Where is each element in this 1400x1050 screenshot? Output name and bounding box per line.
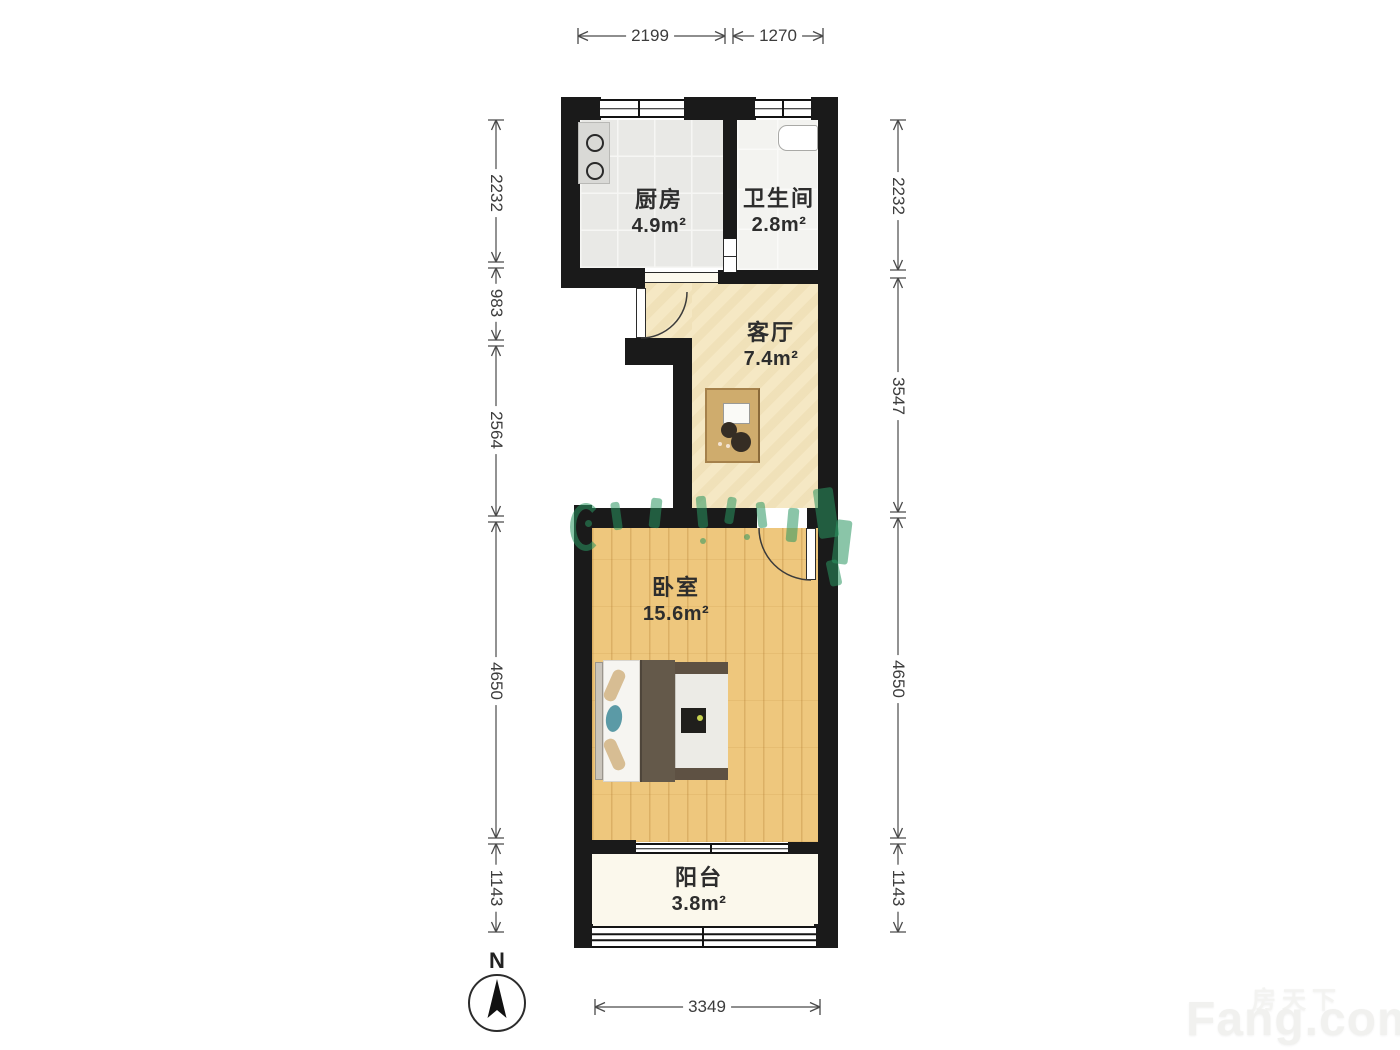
bedroom-name: 卧室 — [643, 574, 709, 602]
dim-left-0: 2232 — [486, 169, 506, 217]
kitchen-window — [600, 99, 684, 118]
kitchen-label: 厨房 4.9m² — [632, 186, 687, 239]
living-room-entry-sill — [645, 272, 718, 283]
table-plate — [723, 403, 750, 424]
balcony-window — [592, 926, 816, 948]
wardrobe — [675, 662, 728, 780]
balcony-label: 阳台 3.8m² — [672, 864, 727, 917]
bed — [595, 660, 675, 782]
dim-left-4: 1143 — [486, 865, 506, 912]
living-room-area: 7.4m² — [744, 346, 799, 371]
wall-bedroom-balcony-right — [788, 842, 820, 854]
balcony-name: 阳台 — [672, 864, 727, 892]
dim-top-0: 2199 — [626, 26, 674, 46]
bedroom-label: 卧室 15.6m² — [643, 574, 709, 627]
wall-living-left — [673, 338, 692, 510]
green-watermark-mark — [570, 503, 602, 551]
wall-bedroom-balcony-left — [574, 840, 636, 854]
tv-dot — [697, 715, 703, 721]
wall-balcony-corner-right — [814, 924, 838, 948]
bathroom-window — [755, 99, 811, 118]
bed-headboard — [595, 662, 603, 780]
dim-right-1: 3547 — [888, 372, 908, 420]
bedroom-balcony-slider — [636, 843, 788, 854]
living-room-name: 客厅 — [744, 319, 799, 347]
bathroom-door — [723, 239, 737, 272]
dim-left-3: 4650 — [486, 657, 506, 705]
dim-right-3: 1143 — [888, 865, 908, 912]
green-watermark-mark — [744, 534, 750, 540]
floorplan-canvas: 房天下 Fang.com — [0, 0, 1400, 1050]
bathroom-label: 卫生间 2.8m² — [743, 185, 815, 238]
bathroom-name: 卫生间 — [743, 185, 815, 213]
living-room-door-leaf — [636, 288, 646, 338]
wall-balcony-corner-left — [574, 924, 593, 948]
balcony-area: 3.8m² — [672, 891, 727, 916]
dim-right-0: 2232 — [888, 172, 908, 220]
kitchen-name: 厨房 — [632, 186, 687, 214]
compass-north-label: N — [489, 948, 505, 974]
tv — [681, 708, 706, 733]
window-mullion — [638, 101, 640, 116]
window-mullion — [782, 101, 784, 116]
window-mullion — [702, 928, 704, 946]
living-room-table — [705, 388, 760, 463]
bedroom-area: 15.6m² — [643, 601, 709, 626]
wall-kitchen-bottom — [561, 268, 645, 288]
stove — [578, 122, 610, 184]
dim-right-2: 4650 — [888, 655, 908, 703]
wall-step-block — [625, 338, 677, 365]
dim-bottom-0: 3349 — [683, 997, 731, 1017]
window-mullion — [710, 845, 712, 852]
kitchen-area: 4.9m² — [632, 213, 687, 238]
wall-left-lower — [574, 505, 592, 948]
table-stool — [731, 432, 751, 452]
table-dot — [718, 442, 722, 446]
stove-burner — [586, 134, 604, 152]
bed-duvet — [640, 660, 675, 782]
dim-top-1: 1270 — [754, 26, 802, 46]
wall-top-middle — [684, 97, 756, 120]
green-watermark-mark — [585, 520, 592, 527]
wall-kitchen-bath-divider — [723, 97, 737, 239]
wall-bathroom-bottom — [718, 270, 818, 284]
fang-watermark-logo: Fang.com — [1186, 992, 1400, 1047]
living-room-floor-nook — [645, 283, 692, 338]
dim-left-2: 2564 — [486, 406, 506, 454]
green-watermark-mark — [700, 538, 706, 544]
compass-circle — [468, 974, 526, 1032]
bathroom-area: 2.8m² — [743, 212, 815, 237]
dim-left-1: 983 — [486, 284, 506, 322]
bathroom-sink — [778, 125, 818, 151]
bedroom-door-leaf — [806, 528, 816, 580]
table-dot — [726, 444, 730, 448]
living-room-label: 客厅 7.4m² — [744, 319, 799, 372]
stove-burner — [586, 162, 604, 180]
